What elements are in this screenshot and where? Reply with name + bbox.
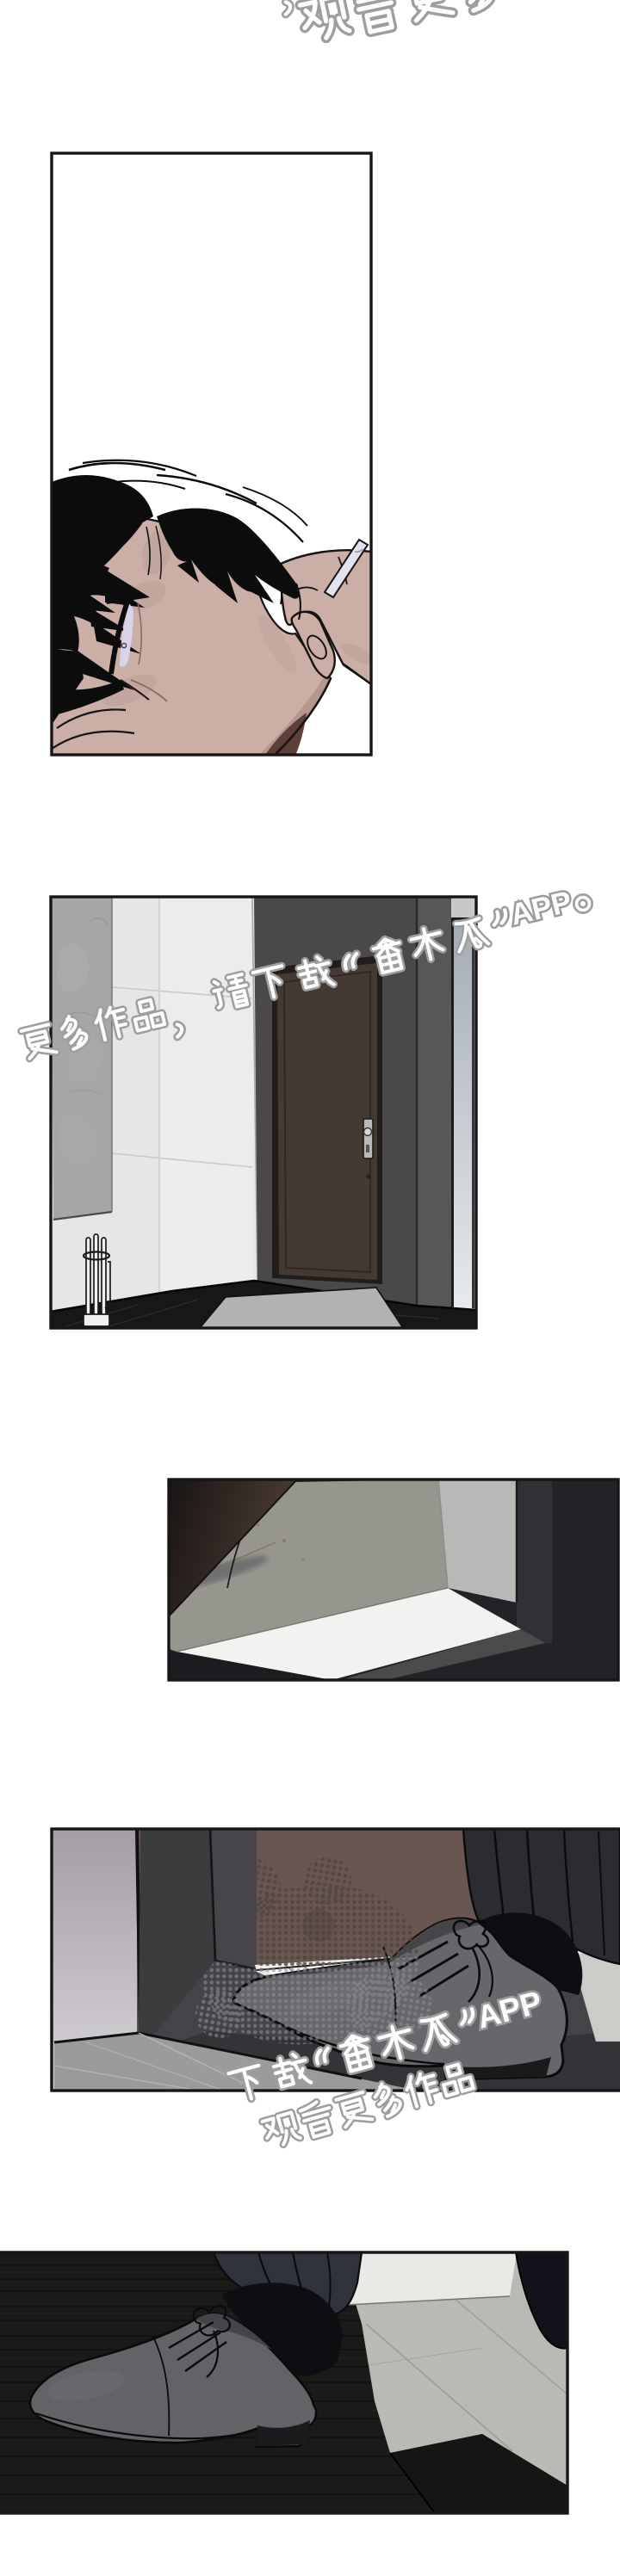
svg-text:APP: APP — [507, 885, 575, 932]
